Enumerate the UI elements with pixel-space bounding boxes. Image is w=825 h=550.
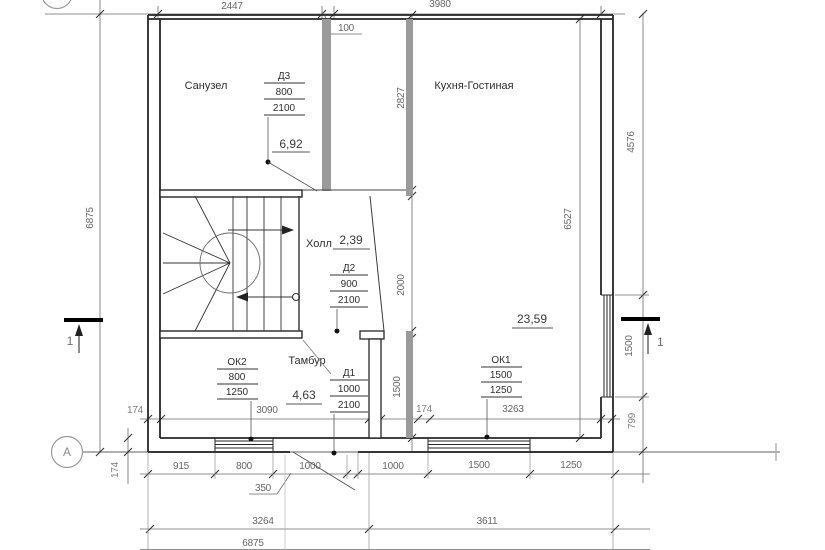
- dim-row1-b: 3090: [256, 405, 278, 416]
- tag-ok2-height: 1250: [226, 387, 249, 398]
- dim-row1-d: 3263: [502, 404, 524, 415]
- floor-plan-drawing: А: [0, 0, 825, 550]
- section-label-right: 1: [657, 335, 664, 349]
- tag-ok2-title: ОК2: [227, 357, 247, 368]
- dim-row3-a: 3264: [252, 516, 274, 527]
- tag-d3-title: Д3: [278, 71, 291, 82]
- dim-row1-c: 174: [416, 404, 433, 415]
- dim-row2-d: 1000: [382, 461, 404, 472]
- tag-d2-width: 900: [341, 279, 358, 290]
- window-right-wall-graphic: [601, 295, 613, 397]
- area-sanuzel: 6,92: [279, 137, 303, 151]
- tag-d2-height: 2100: [338, 295, 361, 306]
- tag-window-ok1: ОК1 1500 1250: [481, 355, 522, 440]
- dim-kitchen-inner: 6527: [563, 208, 574, 230]
- tag-d1-title: Д1: [343, 368, 356, 379]
- dim-top-left: 2447: [221, 1, 243, 12]
- tag-door-d3: Д3 800 2100: [264, 71, 317, 191]
- tag-d1-height: 2100: [338, 400, 361, 411]
- windows-graphics: [215, 295, 613, 452]
- dim-top-partition: 100: [338, 23, 355, 34]
- dim-note-350: 350: [255, 483, 272, 494]
- room-label-hall: Холл: [306, 238, 332, 250]
- area-hall: 2,39: [339, 233, 363, 247]
- window-ok2-graphic: [215, 438, 273, 452]
- area-tambour: 4,63: [292, 388, 316, 402]
- tag-d3-width: 800: [276, 87, 293, 98]
- dim-left-wall: 174: [110, 461, 121, 478]
- tag-door-d2: Д2 900 2100: [330, 263, 368, 334]
- section-mark-left: 1: [64, 320, 103, 353]
- dim-mid-a: 2827: [396, 87, 407, 109]
- axis-bubble-top: [42, 0, 73, 9]
- dim-total: 6875: [242, 538, 264, 549]
- partition-kitchen-lower: [406, 331, 413, 438]
- dim-row2-a: 915: [173, 461, 190, 472]
- partition-bathroom: [322, 19, 331, 191]
- tag-ok2-width: 800: [229, 372, 246, 383]
- dim-row2-b: 800: [236, 461, 253, 472]
- dim-right-c: 799: [627, 412, 638, 429]
- tag-d3-height: 2100: [273, 103, 296, 114]
- wall-slanted: [370, 196, 384, 331]
- tag-d2-title: Д2: [343, 263, 356, 274]
- tag-ok1-title: ОК1: [491, 355, 511, 366]
- axis-a-label: А: [63, 445, 71, 459]
- wall-stub: [360, 331, 384, 339]
- dim-row2-f: 1250: [560, 460, 582, 471]
- wall-tambour-right: [369, 339, 381, 438]
- dim-left-total: 6875: [85, 207, 96, 229]
- tag-ok1-width: 1500: [490, 370, 513, 381]
- dim-row1-a: 174: [127, 405, 144, 416]
- tag-ok1-height: 1250: [490, 385, 513, 396]
- staircase: [163, 196, 300, 331]
- tag-d1-width: 1000: [338, 384, 361, 395]
- area-kitchen: 23,59: [517, 312, 547, 326]
- wall-hall-top: [160, 190, 302, 197]
- partition-kitchen-upper: [406, 19, 413, 196]
- dim-mid-b: 2000: [396, 274, 407, 296]
- room-label-sanuzel: Санузел: [185, 80, 228, 92]
- tag-window-ok2: ОК2 800 1250: [217, 357, 258, 442]
- dim-right-b: 1500: [624, 335, 635, 357]
- wall-stair-bottom: [160, 331, 302, 338]
- floor-plan-screenshot: А: [0, 0, 825, 550]
- room-label-kitchen: Кухня-Гостиная: [434, 80, 513, 92]
- window-ok1-graphic: [428, 438, 530, 452]
- dim-right-a: 4576: [626, 131, 637, 153]
- dim-top-right: 3980: [429, 0, 451, 10]
- dim-row3-b: 3611: [477, 516, 498, 527]
- dim-row2-e: 1500: [468, 460, 490, 471]
- section-label-left: 1: [67, 334, 74, 348]
- dim-mid-c: 1500: [392, 376, 403, 398]
